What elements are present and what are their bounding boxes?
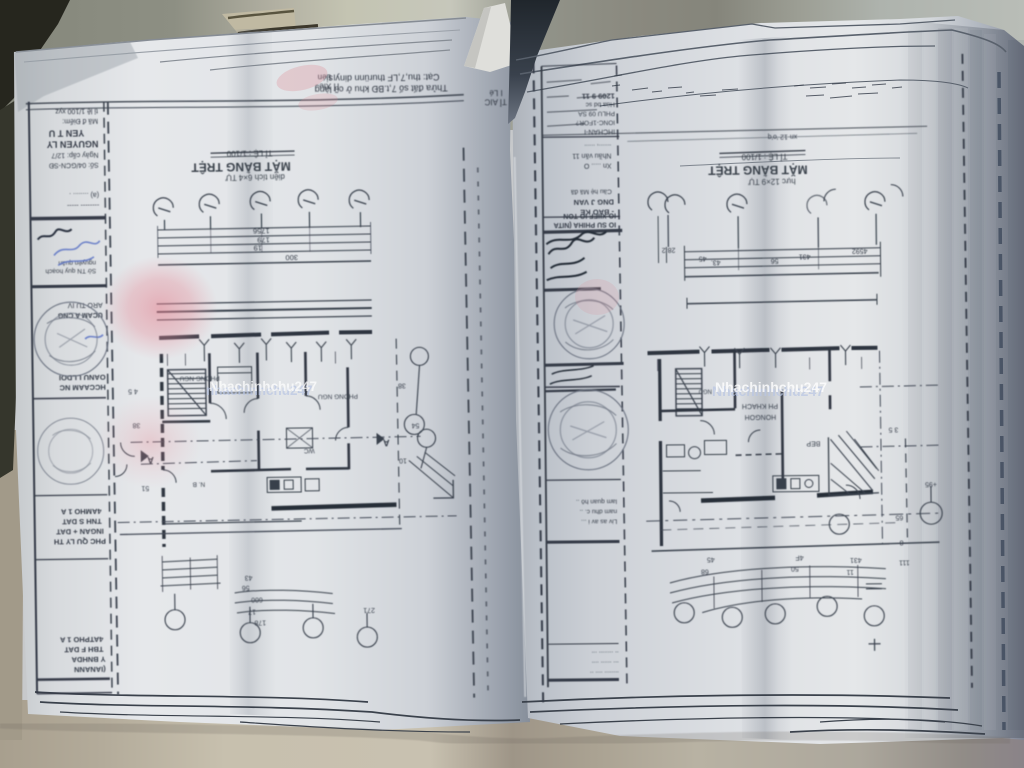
svg-text:tỉ lệ 1/100 xyz: tỉ lệ 1/100 xyz	[55, 107, 98, 116]
svg-text:8: 8	[899, 539, 903, 546]
svg-text:4592: 4592	[852, 247, 868, 254]
svg-text:PHONG NGU: PHONG NGU	[318, 392, 358, 400]
svg-text:Cầu hệ Mã đã: Cầu hệ Mã đã	[571, 188, 612, 197]
svg-text:NGUYEN LY: NGUYEN LY	[47, 139, 99, 150]
svg-text:-------- -----: -------- -----	[66, 201, 99, 208]
svg-text:(a) ........ .: (a) ........ .	[69, 191, 99, 198]
svg-text:TBH F DAT: TBH F DAT	[64, 645, 104, 655]
svg-text:TNH S DAT: TNH S DAT	[62, 517, 102, 527]
svg-text:4ATPHO 1 A: 4ATPHO 1 A	[59, 635, 103, 645]
svg-text:WC: WC	[304, 447, 315, 454]
svg-text:YEN T U: YEN T U	[49, 128, 85, 138]
svg-text:179: 179	[257, 235, 270, 244]
svg-text:diện tích 6×4 TỰ: diện tích 6×4 TỰ	[225, 172, 285, 182]
svg-text:Cạt: thu,7,LF thurünn diny si: Cạt: thu,7,LF thurünn diny si	[326, 72, 439, 84]
svg-text:(IANANN: (IANANN	[74, 665, 106, 674]
svg-text:Sở TN quy hoạch: Sở TN quy hoạch	[45, 267, 96, 276]
svg-text:300: 300	[285, 253, 298, 262]
svg-text:HONGOH: HONGOH	[745, 413, 777, 420]
svg-text:N. B: N. B	[192, 480, 205, 487]
svg-text:Liv as av i ...: Liv as av i ...	[581, 518, 617, 525]
svg-text:54: 54	[411, 421, 419, 428]
svg-text:BEP: BEP	[806, 439, 820, 446]
svg-text:PHC QU LY TH: PHC QU LY TH	[54, 537, 106, 547]
svg-text:4F: 4F	[795, 554, 803, 561]
svg-text:11: 11	[846, 568, 853, 575]
svg-text:+95: +95	[925, 480, 937, 487]
svg-text:Nhầu văn 11: Nhầu văn 11	[572, 152, 611, 161]
svg-text:50: 50	[791, 565, 799, 572]
svg-text:... ...... ....: ... ...... ....	[591, 659, 618, 666]
svg-text:IO SU PHIHA (NITA: IO SU PHIHA (NITA	[553, 220, 616, 228]
svg-text:HCCAAM NC: HCCAAM NC	[59, 383, 106, 393]
svg-text:IO XIIEF IO TON: IO XIIEF IO TON	[563, 211, 616, 219]
svg-text:45: 45	[707, 555, 715, 562]
svg-text:45: 45	[699, 255, 707, 262]
svg-text:Nhachinhchu247: Nhachinhchu247	[715, 379, 827, 395]
svg-text:431: 431	[850, 556, 862, 563]
svg-text:431: 431	[799, 252, 811, 259]
svg-text:38: 38	[398, 382, 406, 389]
svg-text:PHLU 09 SA: PHLU 09 SA	[577, 110, 615, 117]
svg-text:Nhachinhchu247: Nhachinhchu247	[209, 379, 317, 394]
svg-text:IONC-1FOR?: IONC-1FOR?	[575, 119, 615, 126]
svg-text:65: 65	[895, 514, 903, 521]
svg-text:43: 43	[245, 574, 253, 581]
svg-text:1209 9 11: 1209 9 11	[582, 92, 615, 101]
svg-text:4AMHO 1 A: 4AMHO 1 A	[60, 507, 101, 517]
svg-text:INGAN + DAT: INGAN + DAT	[56, 527, 104, 537]
svg-text:nam dhu c. ..: nam dhu c. ..	[579, 508, 617, 515]
svg-text:1756: 1756	[253, 226, 270, 235]
svg-text:56: 56	[771, 257, 779, 264]
svg-text:hực 12×9 TỰ: hực 12×9 TỰ	[748, 177, 796, 187]
svg-text:Xn ..... O: Xn ..... O	[583, 162, 611, 169]
svg-text:........ .... ..: ........ .... ..	[590, 669, 619, 676]
svg-text:56: 56	[242, 584, 250, 591]
svg-text:10: 10	[399, 457, 407, 464]
svg-text:.. ........ ...: .. ........ ...	[591, 649, 618, 656]
svg-text:TỈ AIC: TỈ AIC	[484, 97, 507, 106]
svg-text:43.: 43.	[711, 258, 721, 265]
svg-text:111: 111	[899, 558, 910, 565]
svg-text:xn 12 'o'q: xn 12 'o'q	[768, 133, 798, 140]
svg-text:600: 600	[251, 596, 263, 603]
svg-text:28 2: 28 2	[662, 246, 676, 253]
svg-text:IHCHAN-I: IHCHAN-I	[584, 128, 615, 135]
svg-text:19: 19	[253, 244, 261, 253]
svg-text:3 5: 3 5	[888, 426, 898, 433]
svg-text:lam quan hô ..: lam quan hô ..	[576, 498, 617, 505]
svg-text:Y BNHDA: Y BNHDA	[71, 655, 106, 664]
svg-text:4 5: 4 5	[128, 387, 138, 394]
svg-text:17: 17	[248, 608, 256, 615]
svg-text:68: 68	[701, 568, 709, 575]
svg-text:271: 271	[363, 606, 375, 613]
svg-text:Mã đ Điểm:: Mã đ Điểm:	[62, 117, 98, 125]
svg-text:......., ......: ......., ......	[584, 143, 611, 150]
svg-text:PH KHACH: PH KHACH	[742, 402, 778, 409]
svg-text:MẶT BẰNG TRỆT: MẶT BẰNG TRỆT	[708, 162, 808, 178]
svg-text:I Lé: I Lé	[489, 88, 503, 97]
svg-text:TỈ Xíe: TỈ Xíe	[319, 81, 341, 90]
svg-text:NGU: NGU	[699, 388, 712, 394]
svg-text:DNG J VAN: DNG J VAN	[574, 198, 614, 207]
